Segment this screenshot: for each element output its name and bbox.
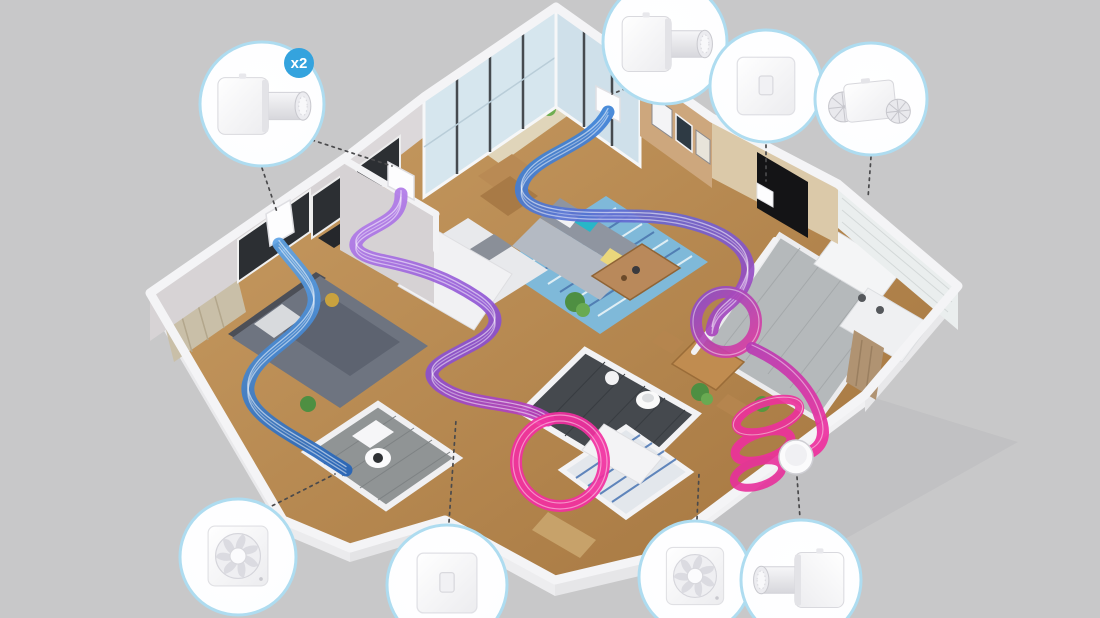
ventilation-diagram: x2 — [0, 0, 1100, 618]
x2-badge: x2 — [284, 48, 314, 78]
callout-exhaust-fan-main — [639, 521, 751, 618]
callout-exhaust-fan-left — [180, 499, 296, 615]
callout-inline-fan — [815, 43, 927, 155]
apartment-scene: x2 — [0, 0, 1100, 618]
round-wall-vent — [779, 440, 813, 474]
callout-ventilator-bedrooms: x2 — [200, 42, 324, 166]
x2-badge-label: x2 — [291, 55, 308, 72]
callout-switch-entry — [710, 30, 822, 142]
